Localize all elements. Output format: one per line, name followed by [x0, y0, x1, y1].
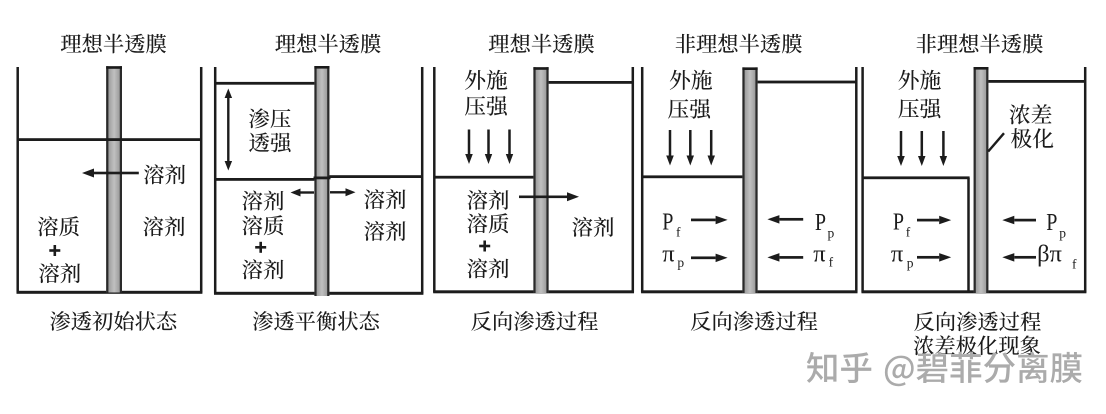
svg-text:p: p [1059, 225, 1066, 240]
svg-text:π: π [662, 240, 674, 267]
svg-text:βπ: βπ [1037, 240, 1062, 267]
svg-text:f: f [829, 255, 834, 270]
svg-text:p: p [828, 225, 835, 240]
svg-text:π: π [813, 240, 825, 267]
svg-text:f: f [676, 225, 681, 240]
svg-text:P: P [1046, 208, 1057, 235]
svg-text:P: P [662, 208, 673, 235]
svg-text:f: f [906, 225, 911, 240]
svg-text:p: p [677, 255, 684, 270]
svg-text:p: p [907, 255, 914, 270]
svg-text:P: P [893, 208, 904, 235]
svg-text:P: P [815, 208, 826, 235]
svg-text:f: f [1072, 257, 1077, 272]
svg-text:π: π [891, 240, 903, 267]
